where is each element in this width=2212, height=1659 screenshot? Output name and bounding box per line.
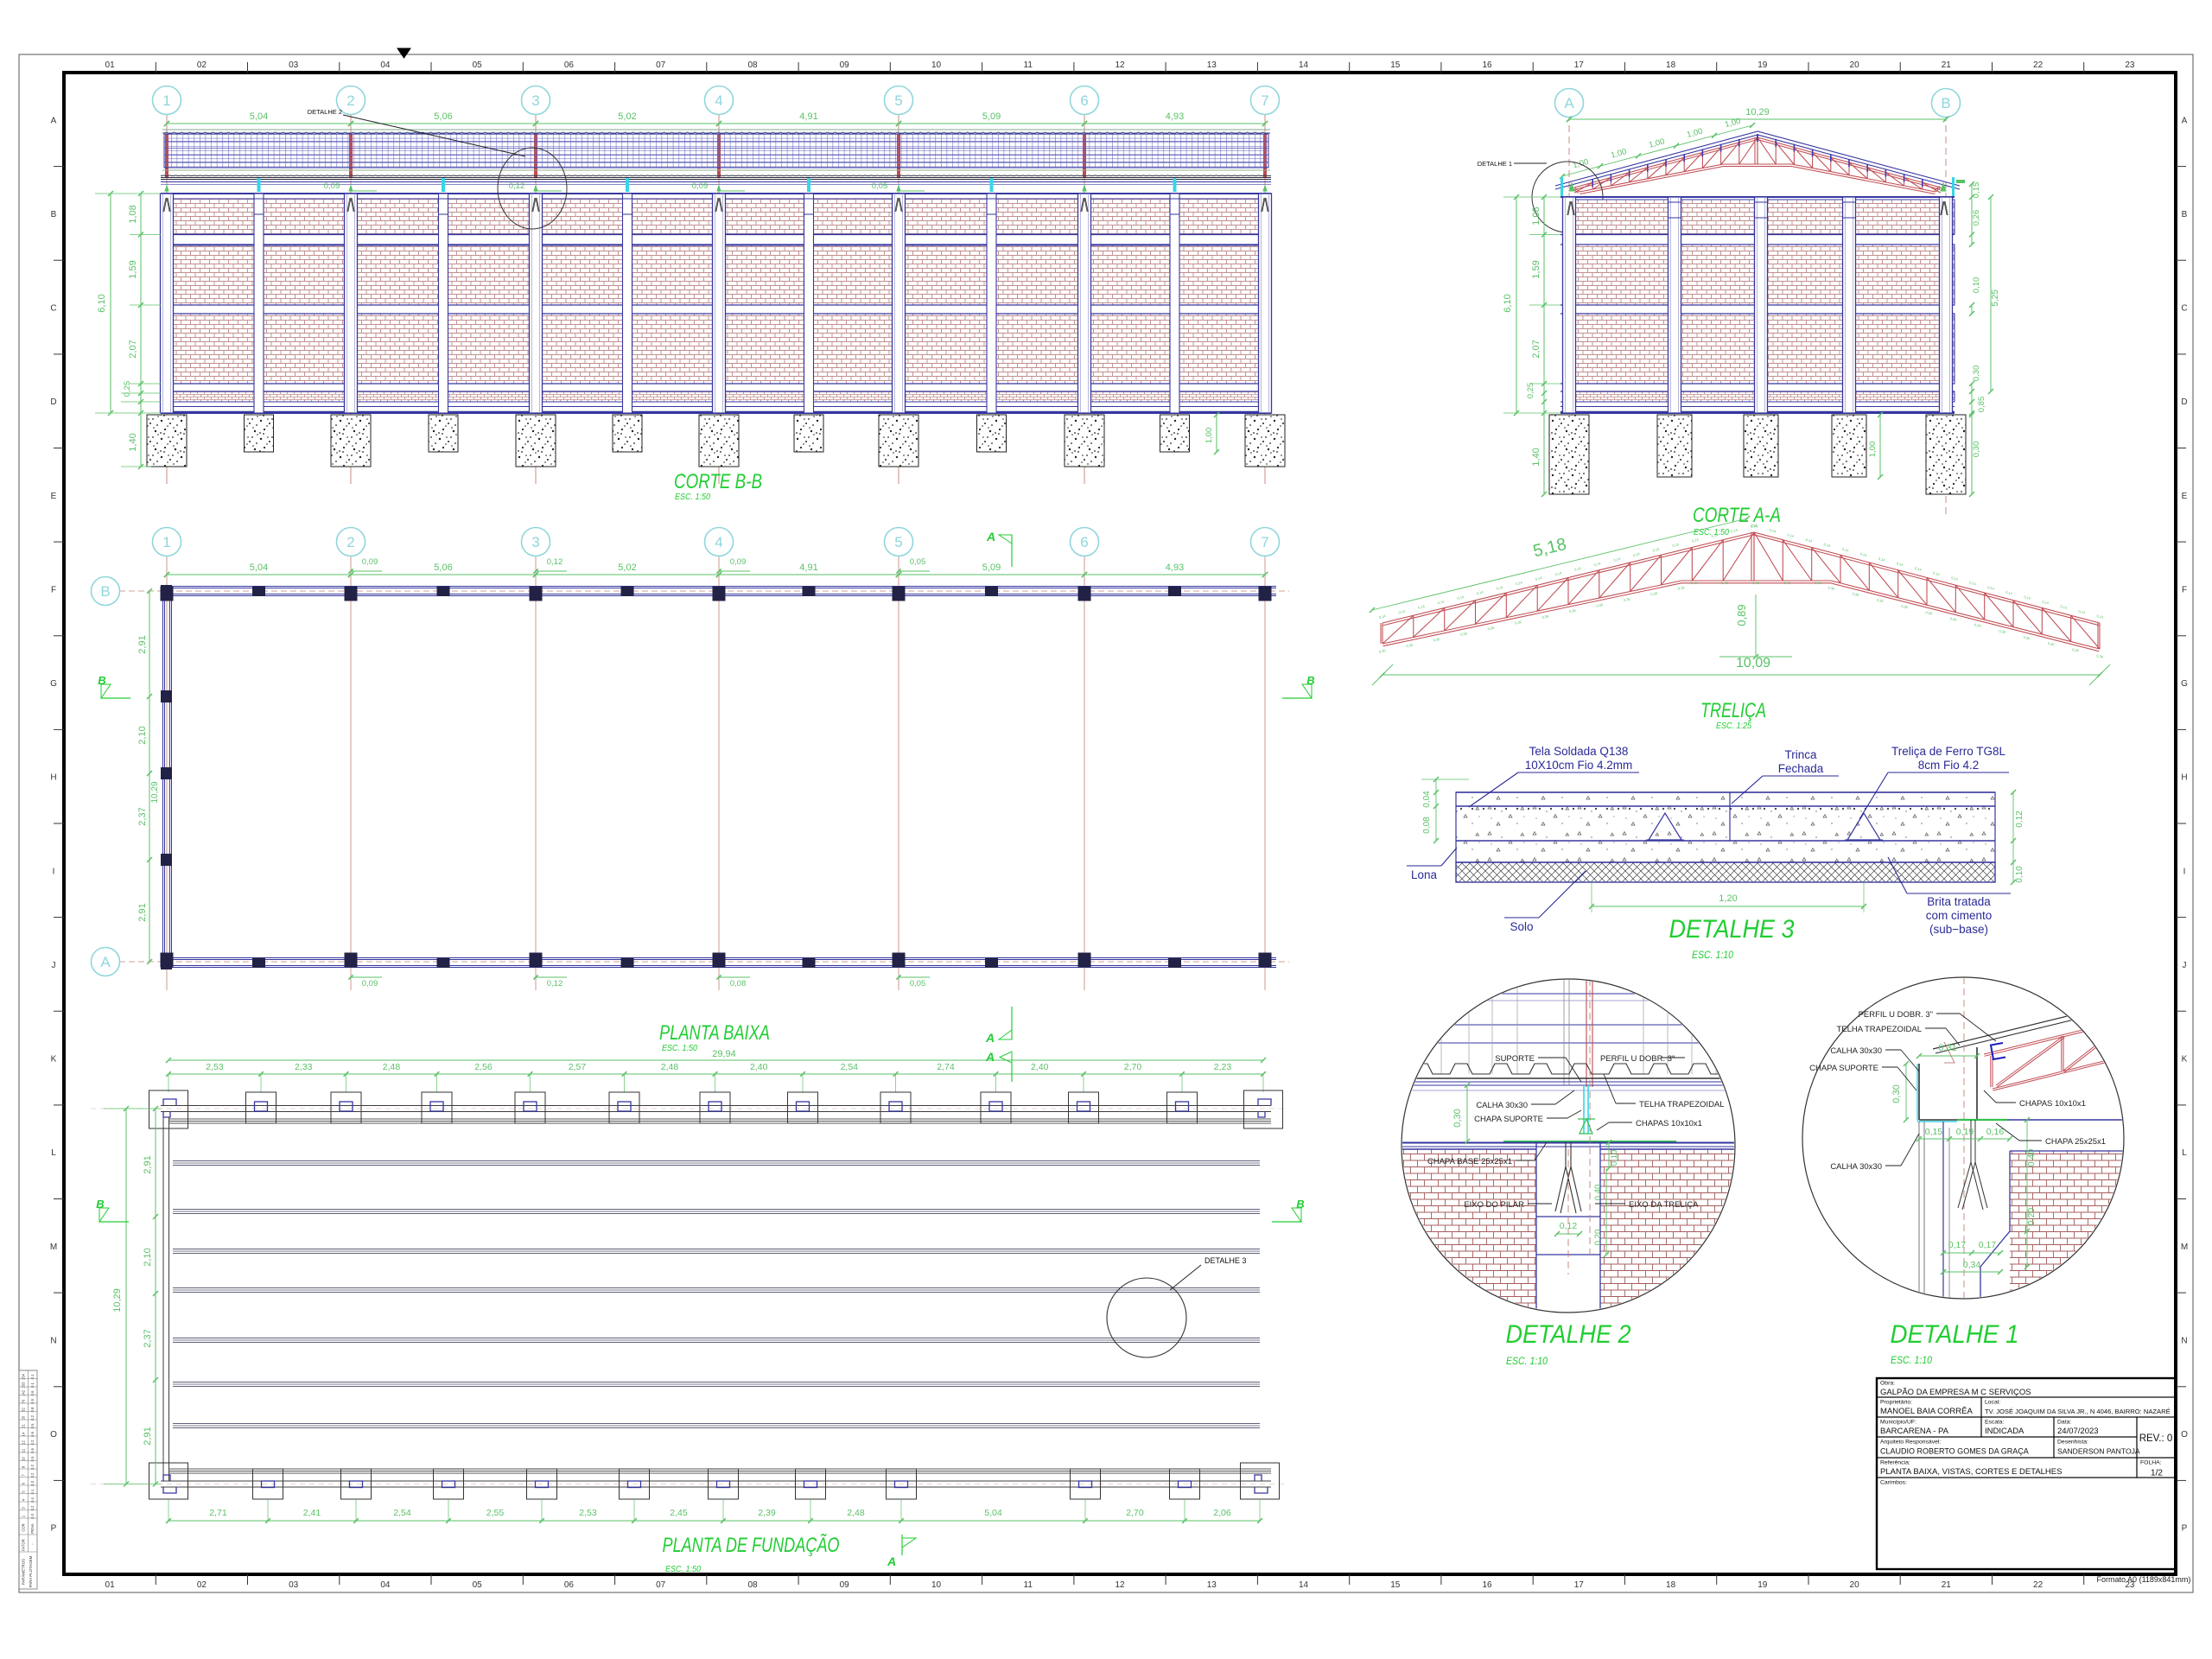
svg-text:COR: COR <box>22 1523 26 1531</box>
svg-text:4,91: 4,91 <box>799 111 817 122</box>
svg-text:ESC. 1:10: ESC. 1:10 <box>1891 1354 1932 1366</box>
svg-text:0,26: 0,26 <box>1972 210 1981 226</box>
svg-text:J: J <box>52 961 56 970</box>
svg-text:2,53: 2,53 <box>579 1508 597 1518</box>
svg-text:O: O <box>2181 1430 2188 1440</box>
svg-text:PLANTA DE FUNDAÇÃO: PLANTA DE FUNDAÇÃO <box>663 1534 840 1557</box>
svg-text:E: E <box>51 492 57 501</box>
svg-text:20: 20 <box>1850 60 1860 70</box>
svg-text:05: 05 <box>473 1580 483 1590</box>
svg-text:2,33: 2,33 <box>295 1062 313 1072</box>
svg-text:2,56: 2,56 <box>474 1062 493 1072</box>
svg-text:0,05: 0,05 <box>872 181 888 191</box>
svg-text:2,45: 2,45 <box>670 1508 688 1518</box>
svg-text:1,00: 1,00 <box>1205 428 1214 444</box>
svg-text:D: D <box>50 397 56 407</box>
svg-text:PERFIL U DOBR. 3": PERFIL U DOBR. 3" <box>1859 1010 1933 1020</box>
svg-text:04: 04 <box>380 60 391 70</box>
svg-text:J: J <box>2183 961 2187 970</box>
svg-text:1,08: 1,08 <box>1531 207 1541 225</box>
svg-text:17: 17 <box>1574 1580 1585 1590</box>
svg-text:2,40: 2,40 <box>750 1062 768 1072</box>
svg-text:ESC. 1:50: ESC. 1:50 <box>662 1043 697 1053</box>
svg-text:PLANTA BAIXA: PLANTA BAIXA <box>659 1021 770 1045</box>
svg-text:02: 02 <box>197 1580 207 1590</box>
svg-text:2,74: 2,74 <box>937 1062 955 1072</box>
svg-text:CALHA 30x30: CALHA 30x30 <box>1830 1162 1882 1172</box>
svg-text:23: 23 <box>2125 60 2135 70</box>
svg-text:5: 5 <box>894 92 902 109</box>
svg-text:10X10cm Fio 4.2mm: 10X10cm Fio 4.2mm <box>1525 759 1633 772</box>
svg-text:5,02: 5,02 <box>618 111 636 122</box>
svg-text:D: D <box>2181 397 2187 407</box>
svg-text:16: 16 <box>1482 1580 1492 1590</box>
svg-text:07: 07 <box>656 60 666 70</box>
svg-text:10: 10 <box>931 1580 942 1590</box>
svg-text:0,19: 0,19 <box>1956 1127 1974 1137</box>
svg-text:0,09: 0,09 <box>362 979 378 988</box>
svg-text:13: 13 <box>1207 1580 1217 1590</box>
svg-text:08: 08 <box>747 60 758 70</box>
svg-text:14: 14 <box>22 1432 26 1436</box>
svg-text:B: B <box>2182 210 2188 219</box>
svg-text:GALPÃO DA EMPRESA M C SERVIÇOS: GALPÃO DA EMPRESA M C SERVIÇOS <box>1880 1388 2031 1397</box>
svg-text:FATOR: FATOR <box>22 1539 26 1551</box>
svg-text:0,08: 0,08 <box>730 979 747 988</box>
svg-text:20: 20 <box>1850 1580 1860 1590</box>
svg-text:N: N <box>2181 1336 2187 1345</box>
svg-text:254: 254 <box>22 1373 26 1380</box>
svg-text:06: 06 <box>564 60 575 70</box>
svg-text:4,93: 4,93 <box>1166 563 1184 573</box>
svg-text:24/07/2023: 24/07/2023 <box>2057 1427 2099 1436</box>
svg-text:A: A <box>1564 95 1574 111</box>
svg-text:2,70: 2,70 <box>1124 1062 1142 1072</box>
svg-text:Tela Soldada Q138: Tela Soldada Q138 <box>1529 745 1629 758</box>
svg-text:B: B <box>51 210 57 219</box>
svg-text:0,25: 0,25 <box>123 381 132 397</box>
svg-text:Fechada: Fechada <box>1778 762 1824 775</box>
svg-text:2,70: 2,70 <box>1126 1508 1144 1518</box>
svg-text:0,12: 0,12 <box>547 979 563 988</box>
svg-text:8cm Fio 4.2: 8cm Fio 4.2 <box>1918 759 1980 772</box>
svg-text:B: B <box>1296 1198 1304 1211</box>
svg-text:32: 32 <box>22 1408 26 1412</box>
svg-text:Brita tratada: Brita tratada <box>1927 895 1991 908</box>
svg-text:Município/UF:: Município/UF: <box>1880 1420 1916 1426</box>
svg-text:22: 22 <box>2033 1580 2044 1590</box>
svg-text:K: K <box>51 1055 57 1065</box>
svg-text:PARA PLOTAGEM: PARA PLOTAGEM <box>29 1555 33 1587</box>
svg-text:2,10: 2,10 <box>143 1248 153 1266</box>
svg-text:ESC. 1:10: ESC. 1:10 <box>1692 949 1733 961</box>
svg-text:TRELIÇA: TRELIÇA <box>1700 699 1766 722</box>
svg-text:1,59: 1,59 <box>1531 260 1541 278</box>
svg-text:5,04: 5,04 <box>250 563 268 573</box>
svg-text:B: B <box>1306 674 1314 687</box>
svg-text:Treliça de Ferro TG8L: Treliça de Ferro TG8L <box>1891 745 2006 758</box>
svg-text:4: 4 <box>715 92 722 109</box>
svg-text:19: 19 <box>1758 60 1768 70</box>
svg-text:A: A <box>985 1050 995 1064</box>
svg-text:5,06: 5,06 <box>434 111 452 122</box>
svg-text:Carimbos:: Carimbos: <box>1880 1480 1907 1486</box>
svg-text:G: G <box>50 679 57 689</box>
svg-text:DETALHE 1: DETALHE 1 <box>1891 1320 2019 1349</box>
svg-text:0,12: 0,12 <box>2015 810 2024 828</box>
svg-text:5,06: 5,06 <box>434 563 452 573</box>
svg-text:10,29: 10,29 <box>112 1288 123 1313</box>
svg-text:09: 09 <box>840 1580 850 1590</box>
svg-text:EIXO DO PILAR: EIXO DO PILAR <box>1464 1200 1524 1210</box>
svg-text:PLANTA BAIXA, VISTAS, CORTES E: PLANTA BAIXA, VISTAS, CORTES E DETALHES <box>1880 1467 2062 1477</box>
svg-text:0,09: 0,09 <box>362 557 378 567</box>
svg-text:1,40: 1,40 <box>128 433 138 451</box>
svg-text:16: 16 <box>1482 60 1492 70</box>
svg-text:0,20: 0,20 <box>2026 1208 2037 1226</box>
svg-text:O: O <box>50 1430 57 1440</box>
svg-text:08: 08 <box>747 1580 758 1590</box>
svg-text:2,91: 2,91 <box>137 903 148 921</box>
svg-text:CHAPAS 10x10x1: CHAPAS 10x10x1 <box>2019 1099 2086 1109</box>
svg-text:2,06: 2,06 <box>1213 1508 1231 1518</box>
svg-text:CORTE A-A: CORTE A-A <box>1693 504 1781 527</box>
svg-text:0,20: 0,20 <box>1593 1230 1603 1246</box>
svg-text:H: H <box>50 773 56 783</box>
svg-text:TELHA TRAPEZOIDAL: TELHA TRAPEZOIDAL <box>1836 1025 1922 1034</box>
svg-text:0,34: 0,34 <box>1963 1260 1981 1270</box>
svg-text:TELHA TRAPEZOIDAL: TELHA TRAPEZOIDAL <box>1639 1100 1725 1109</box>
svg-text:2: 2 <box>346 92 354 109</box>
svg-text:0,17: 0,17 <box>1948 1240 1967 1250</box>
svg-text:PERFIL U DOBR. 3": PERFIL U DOBR. 3" <box>1600 1054 1675 1064</box>
svg-text:A: A <box>985 1031 995 1045</box>
svg-text:H: H <box>2181 773 2187 783</box>
svg-text:10: 10 <box>931 60 942 70</box>
svg-text:0,30: 0,30 <box>1891 1084 1902 1103</box>
svg-text:12: 12 <box>22 1440 26 1445</box>
svg-text:DETALHE 3: DETALHE 3 <box>1669 915 1795 944</box>
svg-text:0,30: 0,30 <box>1452 1109 1463 1127</box>
svg-text:5,02: 5,02 <box>618 563 636 573</box>
svg-text:0,31: 0,31 <box>1938 1043 1956 1053</box>
svg-text:B: B <box>100 583 110 600</box>
svg-text:M: M <box>2181 1243 2188 1252</box>
svg-text:A: A <box>100 954 111 970</box>
svg-text:P: P <box>2182 1524 2188 1534</box>
svg-text:0,15: 0,15 <box>1972 182 1981 199</box>
svg-text:7: 7 <box>1261 534 1268 550</box>
svg-text:0,09: 0,09 <box>692 181 709 191</box>
svg-text:21: 21 <box>1942 60 1952 70</box>
svg-text:1,40: 1,40 <box>1531 448 1541 466</box>
svg-text:1,08: 1,08 <box>128 205 138 223</box>
svg-text:INDICADA: INDICADA <box>1985 1427 2024 1436</box>
svg-text:2: 2 <box>346 534 354 550</box>
svg-text:0,04: 0,04 <box>1422 791 1432 808</box>
svg-text:SUPORTE: SUPORTE <box>1495 1054 1535 1064</box>
svg-text:ESC. 1:25: ESC. 1:25 <box>1716 721 1751 731</box>
svg-text:1,59: 1,59 <box>128 260 138 278</box>
svg-text:A: A <box>887 1554 896 1568</box>
svg-text:C: C <box>50 304 56 314</box>
svg-text:5,04: 5,04 <box>250 111 268 122</box>
svg-text:2,40: 2,40 <box>1031 1062 1049 1072</box>
svg-text:1/2: 1/2 <box>2151 1469 2163 1478</box>
svg-text:0,08: 0,08 <box>1422 817 1432 834</box>
svg-text:04: 04 <box>380 1580 391 1590</box>
svg-text:Obra:: Obra: <box>1880 1381 1895 1387</box>
svg-text:G: G <box>2181 679 2188 689</box>
svg-text:Lona: Lona <box>1411 868 1438 881</box>
svg-text:Formato A0 (1189x841mm): Formato A0 (1189x841mm) <box>2097 1575 2191 1584</box>
svg-text:0,85: 0,85 <box>1977 397 1986 413</box>
svg-text:TV. JOSÉ JOAQUIM DA SILVA JR.,: TV. JOSÉ JOAQUIM DA SILVA JR., N 4046, B… <box>1985 1408 2171 1415</box>
svg-text:20: 20 <box>22 1415 26 1420</box>
svg-text:Data:: Data: <box>2057 1420 2071 1426</box>
svg-text:DETALHE 1: DETALHE 1 <box>1478 160 1512 168</box>
svg-text:10,09: 10,09 <box>1736 656 1770 671</box>
svg-text:18: 18 <box>1666 1580 1676 1590</box>
svg-text:2,54: 2,54 <box>841 1062 859 1072</box>
svg-text:B: B <box>96 1198 104 1211</box>
svg-text:3: 3 <box>531 534 539 550</box>
svg-text:2,48: 2,48 <box>383 1062 401 1072</box>
svg-text:29,94: 29,94 <box>712 1049 736 1059</box>
svg-text:5,04: 5,04 <box>984 1508 1002 1518</box>
svg-text:PENA: PENA <box>30 1523 35 1534</box>
svg-text:DETALHE 2: DETALHE 2 <box>308 108 342 116</box>
svg-text:Arquiteto Responsável:: Arquiteto Responsável: <box>1880 1440 1941 1446</box>
svg-text:CHAPAS 10x10x1: CHAPAS 10x10x1 <box>1636 1119 1702 1128</box>
svg-text:Referência:: Referência: <box>1880 1460 1910 1466</box>
svg-text:Solo: Solo <box>1510 920 1533 933</box>
svg-text:F: F <box>51 585 56 594</box>
svg-text:06: 06 <box>564 1580 575 1590</box>
svg-text:2,41: 2,41 <box>303 1508 321 1518</box>
svg-text:4: 4 <box>715 534 722 550</box>
svg-text:A: A <box>51 116 57 125</box>
svg-text:14: 14 <box>1299 1580 1309 1590</box>
svg-text:C: C <box>2181 304 2187 314</box>
svg-text:L: L <box>2182 1148 2187 1158</box>
svg-text:2,91: 2,91 <box>137 635 148 653</box>
svg-text:Desenhista:: Desenhista: <box>2057 1440 2088 1446</box>
svg-text:0,25: 0,25 <box>1526 383 1535 399</box>
svg-text:1,20: 1,20 <box>1719 893 1737 904</box>
svg-text:0,16: 0,16 <box>1986 1127 2005 1137</box>
svg-text:0,05: 0,05 <box>910 979 926 988</box>
svg-text:Escala:: Escala: <box>1985 1420 2004 1426</box>
svg-text:0,10: 0,10 <box>1972 277 1981 294</box>
svg-text:B: B <box>98 674 105 687</box>
svg-text:4,93: 4,93 <box>1166 111 1184 122</box>
svg-text:0,15: 0,15 <box>1925 1127 1943 1137</box>
svg-text:6,10: 6,10 <box>97 294 107 312</box>
svg-text:K: K <box>2182 1055 2188 1065</box>
svg-text:0,89: 0,89 <box>1735 604 1748 626</box>
svg-text:F: F <box>2182 585 2187 594</box>
svg-text:13: 13 <box>1207 60 1217 70</box>
svg-text:7: 7 <box>1261 92 1268 109</box>
svg-text:EIXO DA TRELIÇA: EIXO DA TRELIÇA <box>1629 1200 1699 1210</box>
svg-text:10: 10 <box>22 1457 26 1461</box>
svg-text:0,05: 0,05 <box>910 557 926 567</box>
svg-text:2,48: 2,48 <box>661 1062 679 1072</box>
svg-text:07: 07 <box>656 1580 666 1590</box>
svg-text:12: 12 <box>1115 1580 1125 1590</box>
svg-text:CORTE B-B: CORTE B-B <box>674 470 762 493</box>
svg-text:I: I <box>2183 867 2186 876</box>
svg-text:70: 70 <box>22 1399 26 1403</box>
svg-text:CALHA 30x30: CALHA 30x30 <box>1476 1101 1528 1110</box>
svg-text:FOLHA:: FOLHA: <box>2140 1460 2162 1466</box>
svg-text:I: I <box>53 867 55 876</box>
svg-text:2,71: 2,71 <box>209 1508 227 1518</box>
svg-text:0,48: 0,48 <box>1783 581 1791 585</box>
svg-text:15: 15 <box>1390 1580 1401 1590</box>
svg-text:11: 11 <box>22 1448 26 1452</box>
svg-text:CHAPA 25x25x1: CHAPA 25x25x1 <box>2045 1137 2106 1147</box>
svg-text:ESC. 1:10: ESC. 1:10 <box>1506 1355 1548 1367</box>
svg-text:2,37: 2,37 <box>137 807 148 825</box>
svg-text:2,39: 2,39 <box>758 1508 776 1518</box>
svg-text:01: 01 <box>105 1580 116 1590</box>
svg-text:N: N <box>50 1336 56 1345</box>
svg-text:2,37: 2,37 <box>143 1329 153 1347</box>
svg-text:Trinca: Trinca <box>1784 748 1816 761</box>
svg-text:PARÂMETROS: PARÂMETROS <box>22 1559 26 1585</box>
svg-text:1: 1 <box>162 534 170 550</box>
svg-text:L: L <box>51 1148 56 1158</box>
svg-text:0,30: 0,30 <box>1972 442 1981 458</box>
svg-text:2,07: 2,07 <box>128 340 138 358</box>
svg-text:com cimento: com cimento <box>1926 909 1993 922</box>
svg-text:01: 01 <box>105 60 116 70</box>
svg-text:0,48: 0,48 <box>1690 581 1698 585</box>
svg-text:1: 1 <box>162 92 170 109</box>
svg-text:CALHA 30x30: CALHA 30x30 <box>1830 1046 1882 1056</box>
svg-text:(sub−base): (sub−base) <box>1929 923 1988 936</box>
svg-text:2,23: 2,23 <box>1214 1062 1232 1072</box>
svg-text:M: M <box>50 1243 57 1252</box>
svg-text:0,12: 0,12 <box>1560 1221 1578 1231</box>
svg-text:03: 03 <box>289 1580 299 1590</box>
svg-text:B: B <box>1941 95 1950 111</box>
svg-text:2,54: 2,54 <box>393 1508 411 1518</box>
svg-text:02: 02 <box>197 60 207 70</box>
svg-text:MANOEL BAIA CORRÊA: MANOEL BAIA CORRÊA <box>1880 1407 1973 1416</box>
svg-text:0,12: 0,12 <box>509 181 525 191</box>
svg-text:5,25: 5,25 <box>1991 289 2000 307</box>
svg-text:0,48: 0,48 <box>1721 581 1729 585</box>
svg-text:3: 3 <box>531 92 539 109</box>
svg-text:2,48: 2,48 <box>847 1508 865 1518</box>
svg-text:DETALHE 2: DETALHE 2 <box>1506 1320 1631 1349</box>
svg-text:5: 5 <box>894 534 902 550</box>
svg-text:11: 11 <box>1024 1580 1033 1590</box>
svg-text:2,10: 2,10 <box>137 726 148 744</box>
svg-text:2,57: 2,57 <box>569 1062 587 1072</box>
svg-text:6: 6 <box>1080 92 1088 109</box>
svg-text:12: 12 <box>1115 60 1125 70</box>
svg-text:DETALHE 3: DETALHE 3 <box>1205 1256 1246 1265</box>
svg-text:Local:: Local: <box>1985 1400 2000 1406</box>
svg-text:E: E <box>2182 492 2188 501</box>
svg-text:2,53: 2,53 <box>206 1062 224 1072</box>
svg-text:5,09: 5,09 <box>982 111 1001 122</box>
svg-text:REV.: 0: REV.: 0 <box>2139 1433 2173 1444</box>
svg-text:10,29: 10,29 <box>150 781 160 803</box>
svg-text:17: 17 <box>1574 60 1585 70</box>
svg-text:142: 142 <box>22 1389 26 1396</box>
svg-text:15: 15 <box>1390 60 1401 70</box>
svg-text:CLAUDIO ROBERTO GOMES DA GRAÇA: CLAUDIO ROBERTO GOMES DA GRAÇA <box>1880 1447 2029 1456</box>
svg-text:19: 19 <box>1758 1580 1768 1590</box>
svg-text:0,48: 0,48 <box>1752 581 1760 585</box>
svg-text:1,00: 1,00 <box>1868 442 1878 458</box>
svg-text:0,17: 0,17 <box>1979 1240 1997 1250</box>
svg-text:SANDERSON PANTOJA: SANDERSON PANTOJA <box>2057 1447 2140 1456</box>
svg-text:ESC. 1:50: ESC. 1:50 <box>665 1564 701 1574</box>
svg-text:14: 14 <box>1299 60 1309 70</box>
svg-text:CHAPA SUPORTE: CHAPA SUPORTE <box>1474 1115 1543 1124</box>
svg-text:A: A <box>2182 116 2188 125</box>
svg-text:A: A <box>986 530 995 543</box>
svg-text:P: P <box>51 1524 57 1534</box>
svg-text:0,30: 0,30 <box>1972 365 1981 382</box>
svg-text:253: 253 <box>22 1382 26 1389</box>
svg-text:5,09: 5,09 <box>982 563 1001 573</box>
svg-text:09: 09 <box>840 60 850 70</box>
svg-text:22: 22 <box>2033 60 2044 70</box>
svg-text:05: 05 <box>473 60 483 70</box>
svg-text:2,07: 2,07 <box>1531 340 1541 358</box>
svg-text:ESC. 1:50: ESC. 1:50 <box>675 492 710 502</box>
svg-text:6: 6 <box>1080 534 1088 550</box>
svg-text:2,91: 2,91 <box>143 1155 153 1173</box>
svg-text:0,12: 0,12 <box>547 557 563 567</box>
svg-text:0,09: 0,09 <box>730 557 747 567</box>
svg-text:18: 18 <box>1666 60 1676 70</box>
svg-text:0,48: 0,48 <box>1815 581 1822 585</box>
svg-text:2,91: 2,91 <box>143 1427 153 1445</box>
svg-text:2,55: 2,55 <box>486 1508 505 1518</box>
svg-text:Proprietário:: Proprietário: <box>1880 1400 1912 1406</box>
svg-text:03: 03 <box>289 60 299 70</box>
svg-text:0,40: 0,40 <box>1593 1185 1603 1201</box>
svg-text:0,10: 0,10 <box>2015 866 2024 883</box>
svg-text:21: 21 <box>1942 1580 1952 1590</box>
svg-text:10,29: 10,29 <box>1745 107 1770 118</box>
svg-text:BARCARENA - PA: BARCARENA - PA <box>1880 1427 1949 1436</box>
svg-text:11: 11 <box>1024 60 1033 70</box>
svg-text:6,10: 6,10 <box>1503 294 1513 312</box>
svg-text:4,91: 4,91 <box>799 563 817 573</box>
svg-text:21: 21 <box>22 1424 26 1428</box>
svg-text:0,10: 0,10 <box>1610 1150 1619 1166</box>
svg-text:CHAPA BASE 25x25x1: CHAPA BASE 25x25x1 <box>1427 1157 1512 1166</box>
svg-text:0,40: 0,40 <box>2026 1149 2037 1167</box>
svg-text:0,09: 0,09 <box>324 181 340 191</box>
